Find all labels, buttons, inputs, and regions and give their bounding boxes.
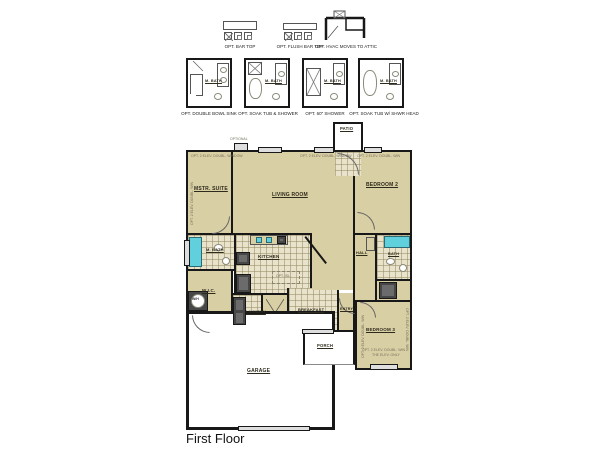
toilet (386, 93, 394, 100)
dishwasher (277, 236, 286, 244)
bar-cabinet (224, 32, 232, 40)
room-label-kitchen: KITCHEN (258, 254, 279, 259)
shower (306, 68, 321, 96)
closet-hatch (305, 97, 312, 105)
breakfast-door (302, 329, 334, 334)
bedroom2-window (364, 147, 382, 153)
opt-60-shower-caption: OPT. 60" SHOWER (294, 111, 356, 116)
bar-cabinet (294, 32, 302, 40)
floor-plan-sheet: OPT. BAR TOP OPT. FLUSH BAR TOP OPT. HVA… (0, 0, 600, 450)
room-label-bath: BATH (388, 252, 399, 256)
room-label-hall: HALL (356, 250, 367, 255)
room-label-m-bath: M. BATH (205, 79, 222, 83)
sheet-title: First Floor (186, 431, 245, 446)
bar-cabinet (234, 32, 242, 40)
annotation-window: OPT. 2 ELEV. DOUBL. WINDOW (300, 154, 352, 158)
toilet (214, 93, 222, 100)
annotation-optional: OPTIONAL (230, 137, 248, 141)
hvac-unit (379, 282, 397, 299)
opt-soaktub-shower-diagram: M. BATH (244, 58, 290, 108)
closet-hatch (361, 97, 368, 105)
annotation-window-vert: OPT. 2 ELEV. DOUBL. WIN (190, 182, 194, 225)
soak-tub (249, 78, 262, 99)
opt-bar-top-diagram (222, 20, 258, 42)
bar-counter (223, 21, 257, 30)
range (236, 252, 250, 265)
shower (248, 62, 262, 75)
annotation-window: OPT. 2 ELEV. DOUBL. WINDOW (191, 154, 243, 158)
living-window (314, 147, 334, 153)
opt-hvac-attic-caption: OPT. HVAC MOVES TO ATTIC (306, 44, 386, 49)
opt-soaktub-shwrhead-caption: OPT. SOAK TUB W/ SHWR HEAD (348, 111, 420, 116)
optional-island-label: OPT. ISL. (276, 274, 291, 278)
opt-soaktub-shower-caption: OPT. SOAK TUB & SHOWER (236, 111, 300, 116)
washer-dryer (233, 297, 246, 325)
room-label-m-bath: M. BATH (265, 79, 282, 83)
room-label-bedroom3: BEDROOM 3 (366, 327, 395, 332)
bar-cabinet (304, 32, 312, 40)
opt-double-bowl-caption: OPT. DOUBLE BOWL SINK (176, 111, 242, 116)
master-toilet (222, 257, 230, 265)
sink-bowl (256, 237, 262, 243)
bath2-tub (384, 236, 410, 248)
toilet (272, 93, 280, 100)
room-label-wic: W.I.C. (202, 288, 215, 293)
bar-cabinet (244, 32, 252, 40)
room-label-master-bath: M. BATH (206, 247, 224, 252)
refrigerator (236, 274, 251, 293)
room-label-garage: GARAGE (247, 368, 270, 374)
bedroom3-window (370, 364, 398, 370)
sink-bowl (266, 237, 272, 243)
water-heater-label: W/H (192, 297, 199, 301)
annotation-window-vert: OPT. 2 ELEV. DOUBL. WIN (405, 308, 409, 351)
mbath-window (184, 240, 190, 266)
linen-closet (366, 237, 375, 251)
opt-bar-top-caption: OPT. BAR TOP (208, 44, 272, 49)
room-label-entry: ENTRY (340, 307, 353, 311)
opt-hvac-attic-diagram (324, 10, 366, 42)
optional-window (234, 143, 248, 151)
closet-hatch (189, 94, 196, 105)
opt-double-bowl-diagram: M. BATH (186, 58, 232, 108)
water-heater-closet (188, 291, 208, 311)
room-label-m-bath: M. BATH (324, 79, 341, 83)
door-swing (192, 61, 204, 72)
room-label-porch: PORCH (317, 343, 333, 348)
bath2-toilet (399, 264, 407, 272)
vanity (217, 63, 229, 87)
bar-cabinet (284, 32, 292, 40)
living-window (258, 147, 282, 153)
soak-tub (363, 70, 377, 96)
annotation-bedroom3-window: OPT. 2 ELEV. DOUBL. WIN (362, 348, 405, 352)
garage-door (238, 426, 310, 431)
room-label-living: LIVING ROOM (272, 192, 308, 198)
room-porch (303, 332, 355, 365)
annotation-window: OPT. 2 ELEV. DOUBL. WIN (357, 154, 400, 158)
room-label-laundry: LAUNDRY (246, 310, 266, 314)
room-label-patio: PATIO (340, 126, 353, 131)
room-label-m-bath: M. BATH (380, 79, 397, 83)
opt-flush-bar-top-diagram (282, 20, 318, 42)
opt-60-shower-diagram: M. BATH (302, 58, 348, 108)
bar-counter (283, 23, 317, 30)
living-open-area (312, 233, 353, 290)
room-label-breakfast: BREAKFAST (298, 307, 324, 312)
opt-soaktub-shwrhead-diagram: M. BATH (358, 58, 404, 108)
master-tub (189, 237, 202, 267)
tub (190, 74, 203, 96)
bath2-sink (386, 258, 395, 265)
annotation-elev-only: THE ELEV. ONLY (372, 353, 400, 357)
room-label-mstr-suite: MSTR. SUITE (194, 186, 228, 192)
toilet (330, 93, 338, 100)
room-label-bedroom2: BEDROOM 2 (366, 182, 398, 188)
